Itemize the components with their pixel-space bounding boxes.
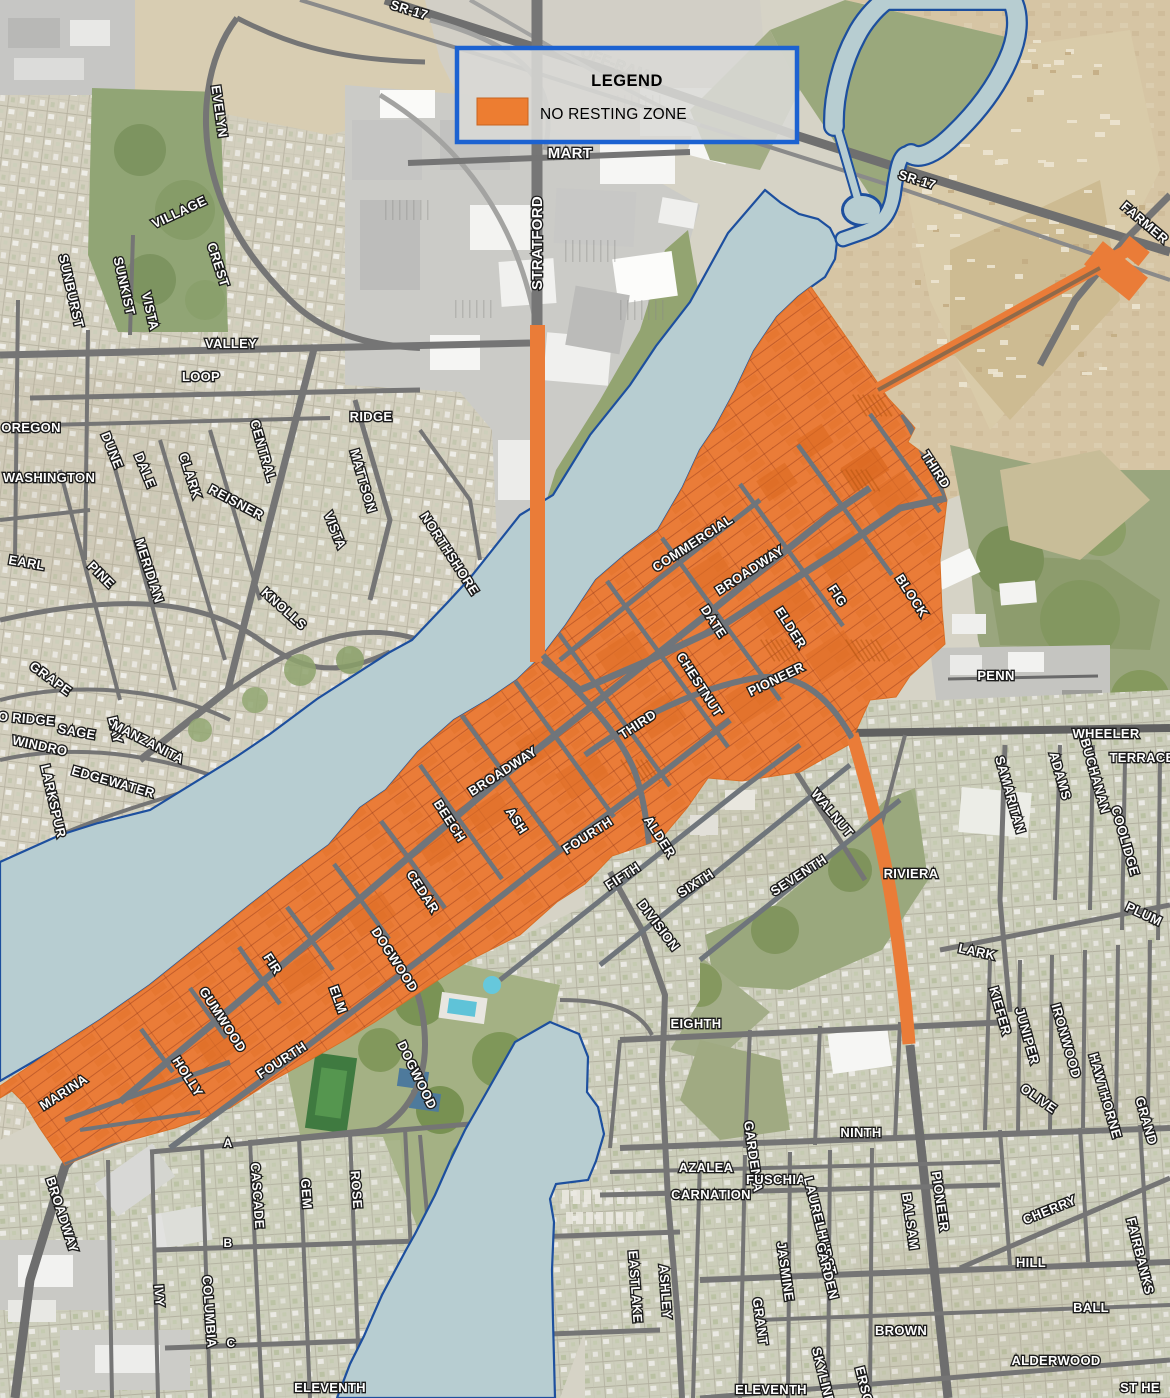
svg-text:FUSCHIA: FUSCHIA	[746, 1172, 806, 1187]
svg-text:GEM: GEM	[298, 1178, 315, 1209]
svg-text:ALDERWOOD: ALDERWOOD	[1011, 1353, 1100, 1368]
svg-text:LOOP: LOOP	[182, 369, 220, 384]
svg-text:LEGEND: LEGEND	[591, 72, 663, 90]
svg-text:ELEVENTH: ELEVENTH	[735, 1382, 807, 1397]
svg-text:STRATFORD: STRATFORD	[529, 196, 546, 290]
svg-text:RIVIERA: RIVIERA	[884, 866, 939, 881]
svg-text:AZALEA: AZALEA	[679, 1160, 734, 1175]
svg-text:ROSE: ROSE	[348, 1170, 366, 1209]
svg-text:B: B	[224, 1236, 233, 1250]
svg-text:PENN: PENN	[977, 668, 1014, 683]
svg-text:ST HE: ST HE	[1120, 1380, 1160, 1395]
svg-text:BROWN: BROWN	[875, 1323, 927, 1338]
svg-text:WASHINGTON: WASHINGTON	[3, 470, 95, 485]
svg-text:OREGON: OREGON	[1, 420, 61, 435]
svg-text:RIDGE: RIDGE	[350, 409, 393, 424]
svg-text:C: C	[227, 1336, 236, 1350]
svg-text:HILL: HILL	[1016, 1255, 1046, 1270]
svg-text:TERRACE: TERRACE	[1110, 750, 1170, 765]
svg-text:NINTH: NINTH	[840, 1125, 881, 1140]
svg-text:NO RESTING ZONE: NO RESTING ZONE	[540, 106, 687, 123]
svg-text:ELEVENTH: ELEVENTH	[294, 1380, 366, 1395]
svg-text:VALLEY: VALLEY	[205, 336, 257, 351]
svg-text:CARNATION: CARNATION	[671, 1187, 751, 1202]
svg-text:MART: MART	[548, 145, 593, 162]
svg-text:EIGHTH: EIGHTH	[671, 1016, 722, 1031]
svg-text:BALL: BALL	[1073, 1300, 1109, 1315]
svg-text:A: A	[224, 1136, 233, 1150]
svg-text:IVY: IVY	[151, 1284, 167, 1307]
